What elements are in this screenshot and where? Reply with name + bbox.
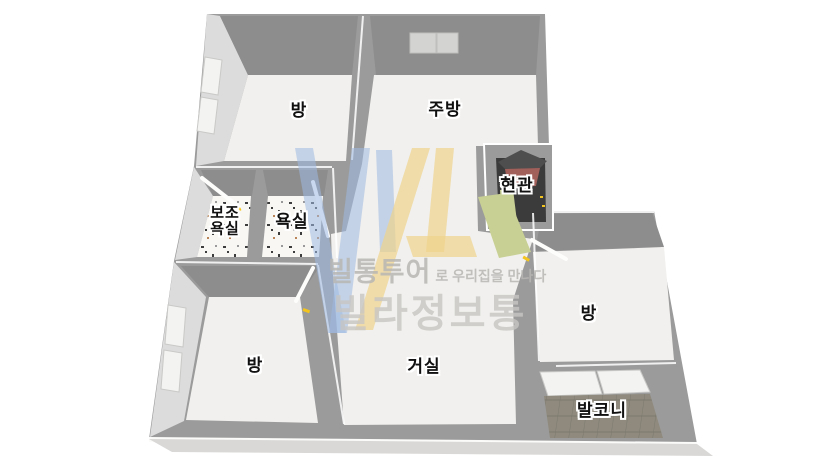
label-living-room: 거실 [407,358,440,376]
label-balcony: 발코니 [577,402,627,420]
label-aux-bathroom: 보조 욕실 [210,205,240,237]
label-bedroom-right: 방 [581,305,598,323]
kitchen-cabinet [410,33,458,53]
label-entrance: 현관 [500,177,533,195]
floor-plan: 빌통투어 로 우리집을 만나다 빌라정보통 방 주방 현관 보조 욕실 욕실 방… [0,0,840,472]
label-bathroom: 욕실 [275,213,308,231]
floor-bedroom-right [533,247,674,362]
label-kitchen: 주방 [428,101,461,119]
watermark-brand: 빌라정보통 [333,283,527,339]
wall-dark-bedroom-right [535,212,664,251]
balcony-sliding-door [540,370,650,396]
floor-plan-svg [0,0,840,472]
label-bedroom-left: 방 [247,357,264,375]
label-bedroom-top: 방 [291,102,308,120]
